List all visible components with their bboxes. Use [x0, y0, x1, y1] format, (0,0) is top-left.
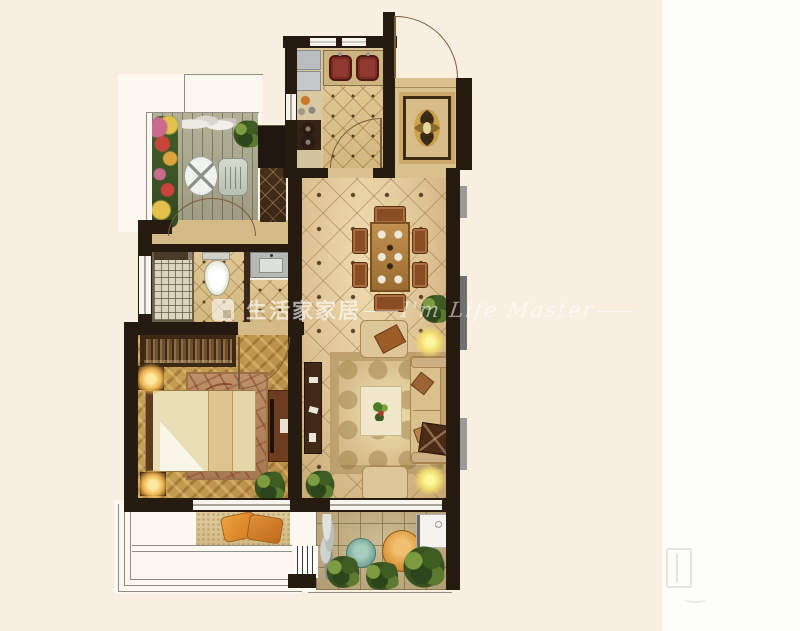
corner-logo-swoosh [684, 596, 706, 603]
shower-head [154, 252, 192, 260]
wall [288, 332, 302, 512]
tv-cabinet-living [304, 362, 322, 454]
balcony-round-table [184, 156, 218, 196]
wardrobe [140, 335, 236, 367]
dining-chair [352, 228, 368, 254]
dining-chair [352, 262, 368, 288]
entry-door-leaf [394, 16, 396, 78]
entry-rug [399, 92, 455, 164]
corner-logo-bar [676, 554, 678, 582]
bay-window [193, 500, 290, 510]
nightstand [138, 366, 164, 390]
kitchen-cabinet [295, 50, 321, 70]
potted-plant [304, 468, 336, 502]
bay-window-line [130, 504, 131, 580]
exterior-wall-accent [460, 418, 467, 470]
watermark-slogan-text: I'm Life Master [399, 298, 596, 322]
watermark-brand-text: 生活家家居 [246, 295, 361, 325]
balcony-window [330, 500, 442, 510]
hall-cabinet [258, 125, 285, 168]
kitchen-window [310, 38, 336, 46]
cabinet-decor [309, 433, 316, 442]
cabinet-decor [308, 406, 318, 414]
background-white-band [666, 0, 800, 631]
bed-blanket-band [232, 391, 256, 471]
sofa-pillow [411, 372, 435, 396]
bay-window-line [118, 591, 302, 592]
bay-sill-line [132, 551, 292, 552]
dining-table [370, 222, 410, 292]
bathroom-window [139, 256, 151, 314]
corner-watermark-logo [660, 544, 708, 606]
wall [373, 168, 395, 178]
balcony-chair [218, 158, 248, 196]
balcony-edge-line [308, 592, 452, 593]
floor-lamp-glow [414, 326, 446, 358]
double-bed [145, 390, 255, 472]
bay-window-pillow [246, 514, 284, 545]
balcony-plant [398, 546, 450, 588]
table-lamp-glow [135, 363, 167, 395]
bay-sill-line [132, 545, 292, 546]
bedroom-door-leaf [238, 337, 240, 389]
toilet-tank [202, 252, 230, 260]
armchair [362, 466, 408, 502]
flower-bed [152, 116, 178, 228]
faucet-icon [366, 52, 370, 56]
entry-dining-opening [395, 168, 446, 178]
bay-window-line [130, 579, 302, 580]
brand-logo-notch [223, 310, 231, 318]
sink-basin [356, 55, 379, 81]
floor-plan-canvas: 生活家家居 — I'm Life Master — [0, 0, 800, 631]
balcony-window-line [146, 112, 147, 230]
floor-lamp-glow [414, 464, 446, 496]
background-seam [662, 0, 666, 631]
kitchen-counter [295, 150, 321, 168]
faucet-icon [338, 52, 342, 56]
wall [446, 512, 460, 590]
bay-window-line [118, 504, 119, 592]
table-lamp-glow [137, 469, 169, 501]
entry-door-arc [396, 16, 458, 78]
wall [446, 168, 460, 512]
tv-screen [270, 399, 274, 453]
shower-area [152, 252, 194, 322]
bathroom-vanity [250, 252, 290, 278]
kitchen-window [342, 38, 366, 46]
brand-logo-icon [212, 299, 234, 321]
sofa-cushion-seam [413, 410, 441, 411]
dining-chair [412, 228, 428, 254]
pebbles [182, 112, 236, 134]
throw-blanket [374, 324, 406, 354]
wall [152, 244, 302, 252]
washing-machine [416, 514, 448, 548]
nightstand [140, 472, 166, 496]
entry-rug-medallion [410, 106, 444, 150]
watermark: 生活家家居 — I'm Life Master — [212, 294, 623, 326]
bay-window-line [124, 504, 125, 586]
kitchen-side-window [286, 94, 296, 120]
bay-window-line [124, 585, 302, 586]
cabinet-decor [280, 419, 288, 433]
kitchen-door-leaf [380, 118, 382, 168]
exterior-wall-accent [460, 186, 467, 218]
corridor-opening [328, 168, 373, 178]
wall [124, 335, 138, 512]
stove-cooktop [295, 120, 321, 150]
wardrobe-interior [144, 339, 232, 363]
wall [138, 220, 172, 234]
coffee-table [360, 386, 402, 436]
kitchen-cabinet [295, 71, 321, 91]
vanity-sink [259, 258, 283, 273]
kitchen-counter [295, 92, 321, 120]
bed-sheet-fold [160, 419, 206, 471]
cabinet-decor [309, 377, 318, 383]
corner-logo-box [666, 548, 692, 588]
washer-dial [435, 521, 442, 528]
sink-basin [329, 55, 352, 81]
wall [456, 78, 472, 170]
wall [288, 574, 316, 588]
faucet-icon [270, 254, 273, 257]
dining-chair [412, 262, 428, 288]
bed-headboard [146, 391, 153, 471]
kitchen-double-sink [323, 50, 385, 86]
outline-line [184, 74, 263, 75]
sofa-armrest [411, 357, 449, 368]
flower-bouquet [373, 401, 389, 421]
watermark-dash: — [362, 301, 400, 320]
wall [283, 36, 397, 48]
watermark-dash: — [596, 301, 634, 320]
balcony-plant [322, 556, 364, 588]
bed-blanket-band [208, 391, 232, 471]
